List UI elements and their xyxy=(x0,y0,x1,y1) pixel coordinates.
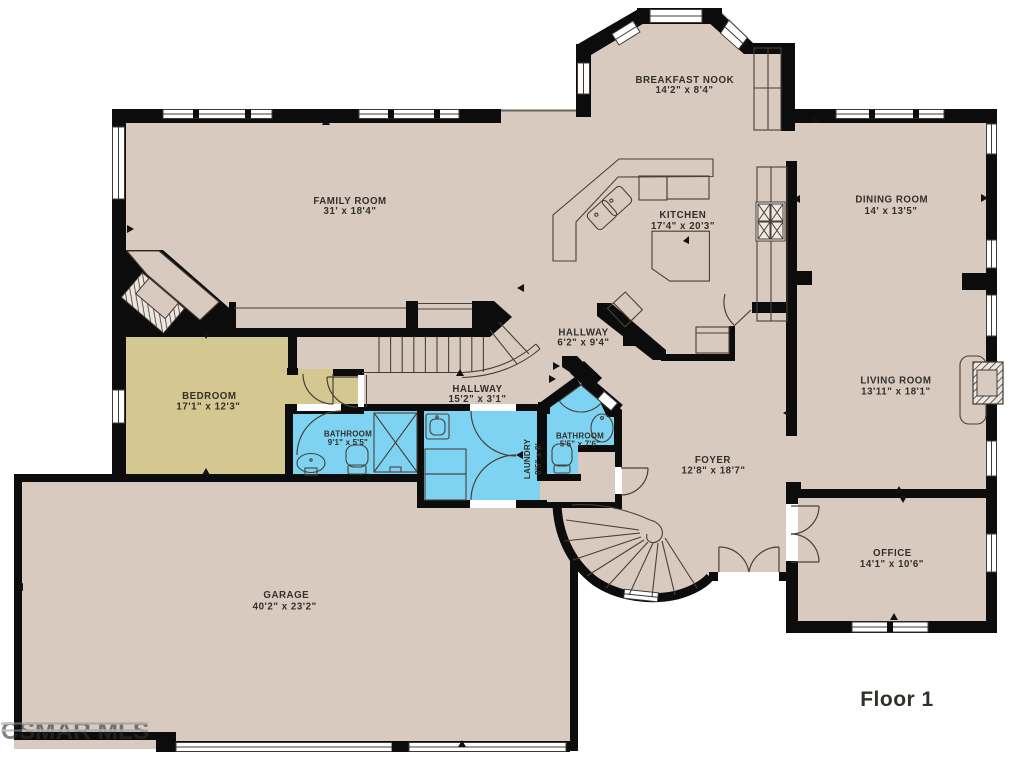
svg-text:LAUNDRY: LAUNDRY xyxy=(523,438,532,479)
svg-text:9'1" x 5'5": 9'1" x 5'5" xyxy=(328,438,368,447)
svg-text:13'11" x 18'1": 13'11" x 18'1" xyxy=(861,386,930,397)
svg-text:14'1" x 10'6": 14'1" x 10'6" xyxy=(860,559,924,570)
svg-text:FOYER: FOYER xyxy=(695,455,731,466)
svg-text:OFFICE: OFFICE xyxy=(873,548,912,559)
svg-text:17'4" x 20'3": 17'4" x 20'3" xyxy=(651,221,715,232)
svg-text:14' x 13'5": 14' x 13'5" xyxy=(865,206,918,217)
svg-text:Floor 1: Floor 1 xyxy=(860,688,934,711)
svg-text:DINING ROOM: DINING ROOM xyxy=(855,195,928,206)
svg-text:31' x 18'4": 31' x 18'4" xyxy=(324,206,377,217)
svg-text:8'5" x 8': 8'5" x 8' xyxy=(534,443,543,475)
svg-text:LIVING ROOM: LIVING ROOM xyxy=(860,376,931,387)
svg-text:14'2" x 8'4": 14'2" x 8'4" xyxy=(655,85,713,96)
svg-text:6'2" x 9'4": 6'2" x 9'4" xyxy=(557,337,609,348)
svg-text:12'8" x 18'7": 12'8" x 18'7" xyxy=(681,466,745,477)
svg-text:17'1" x 12'3": 17'1" x 12'3" xyxy=(176,402,240,413)
svg-text:BEDROOM: BEDROOM xyxy=(182,391,236,402)
svg-text:15'2" x 3'1": 15'2" x 3'1" xyxy=(448,394,506,405)
svg-text:KITCHEN: KITCHEN xyxy=(659,210,706,221)
svg-text:GARAGE: GARAGE xyxy=(263,590,309,601)
svg-text:5'5" x 7'6": 5'5" x 7'6" xyxy=(560,440,600,449)
svg-text:40'2" x 23'2": 40'2" x 23'2" xyxy=(253,601,317,612)
